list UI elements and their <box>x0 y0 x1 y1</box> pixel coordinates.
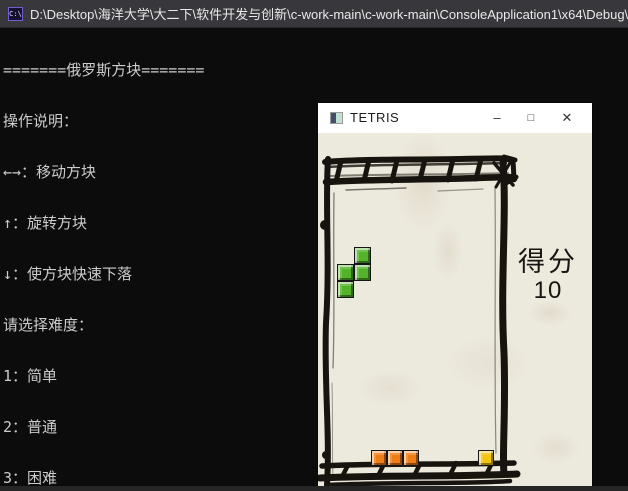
window-bottom-edge <box>0 486 628 491</box>
cmd-icon: C:\ <box>8 7 23 21</box>
minimize-button[interactable]: – <box>486 103 508 133</box>
console-line-normal: 2：普通 <box>3 419 204 436</box>
orange-block <box>387 450 403 466</box>
console-window-title: D:\Desktop\海洋大学\大二下\软件开发与创新\c-work-main\… <box>30 4 628 23</box>
green-block <box>354 247 371 264</box>
score-value: 10 <box>508 277 588 305</box>
score-panel: 得分 10 <box>508 247 588 305</box>
console-line-drop: ↓：使方块快速下落 <box>3 266 204 283</box>
maximize-button[interactable]: □ <box>520 103 542 133</box>
console-titlebar[interactable]: C:\ D:\Desktop\海洋大学\大二下\软件开发与创新\c-work-m… <box>0 0 628 28</box>
console-line-hard: 3：困难 <box>3 470 204 487</box>
tetris-game-area[interactable]: 得分 10 <box>318 133 592 487</box>
close-button[interactable]: ✕ <box>556 103 578 133</box>
console-line-easy: 1：简单 <box>3 368 204 385</box>
console-line-rotate: ↑：旋转方块 <box>3 215 204 232</box>
tetris-window-title: TETRIS <box>350 103 399 133</box>
playfield-sketch-border <box>318 133 592 487</box>
console-line-difficulty: 请选择难度： <box>3 317 204 334</box>
tetris-window: TETRIS – □ ✕ <box>318 103 592 487</box>
console-line-title: =======俄罗斯方块======= <box>3 62 204 79</box>
console-output: =======俄罗斯方块======= 操作说明： ←→：移动方块 ↑：旋转方块… <box>3 28 204 491</box>
score-label: 得分 <box>508 247 588 277</box>
tetris-titlebar[interactable]: TETRIS – □ ✕ <box>318 103 592 133</box>
console-line-help-head: 操作说明： <box>3 113 204 130</box>
green-block <box>337 281 354 298</box>
green-block <box>337 264 354 281</box>
green-block <box>354 264 371 281</box>
console-line-move: ←→：移动方块 <box>3 164 204 181</box>
tetris-app-icon <box>330 112 343 124</box>
orange-block <box>371 450 387 466</box>
yellow-block <box>478 450 494 466</box>
orange-block <box>403 450 419 466</box>
